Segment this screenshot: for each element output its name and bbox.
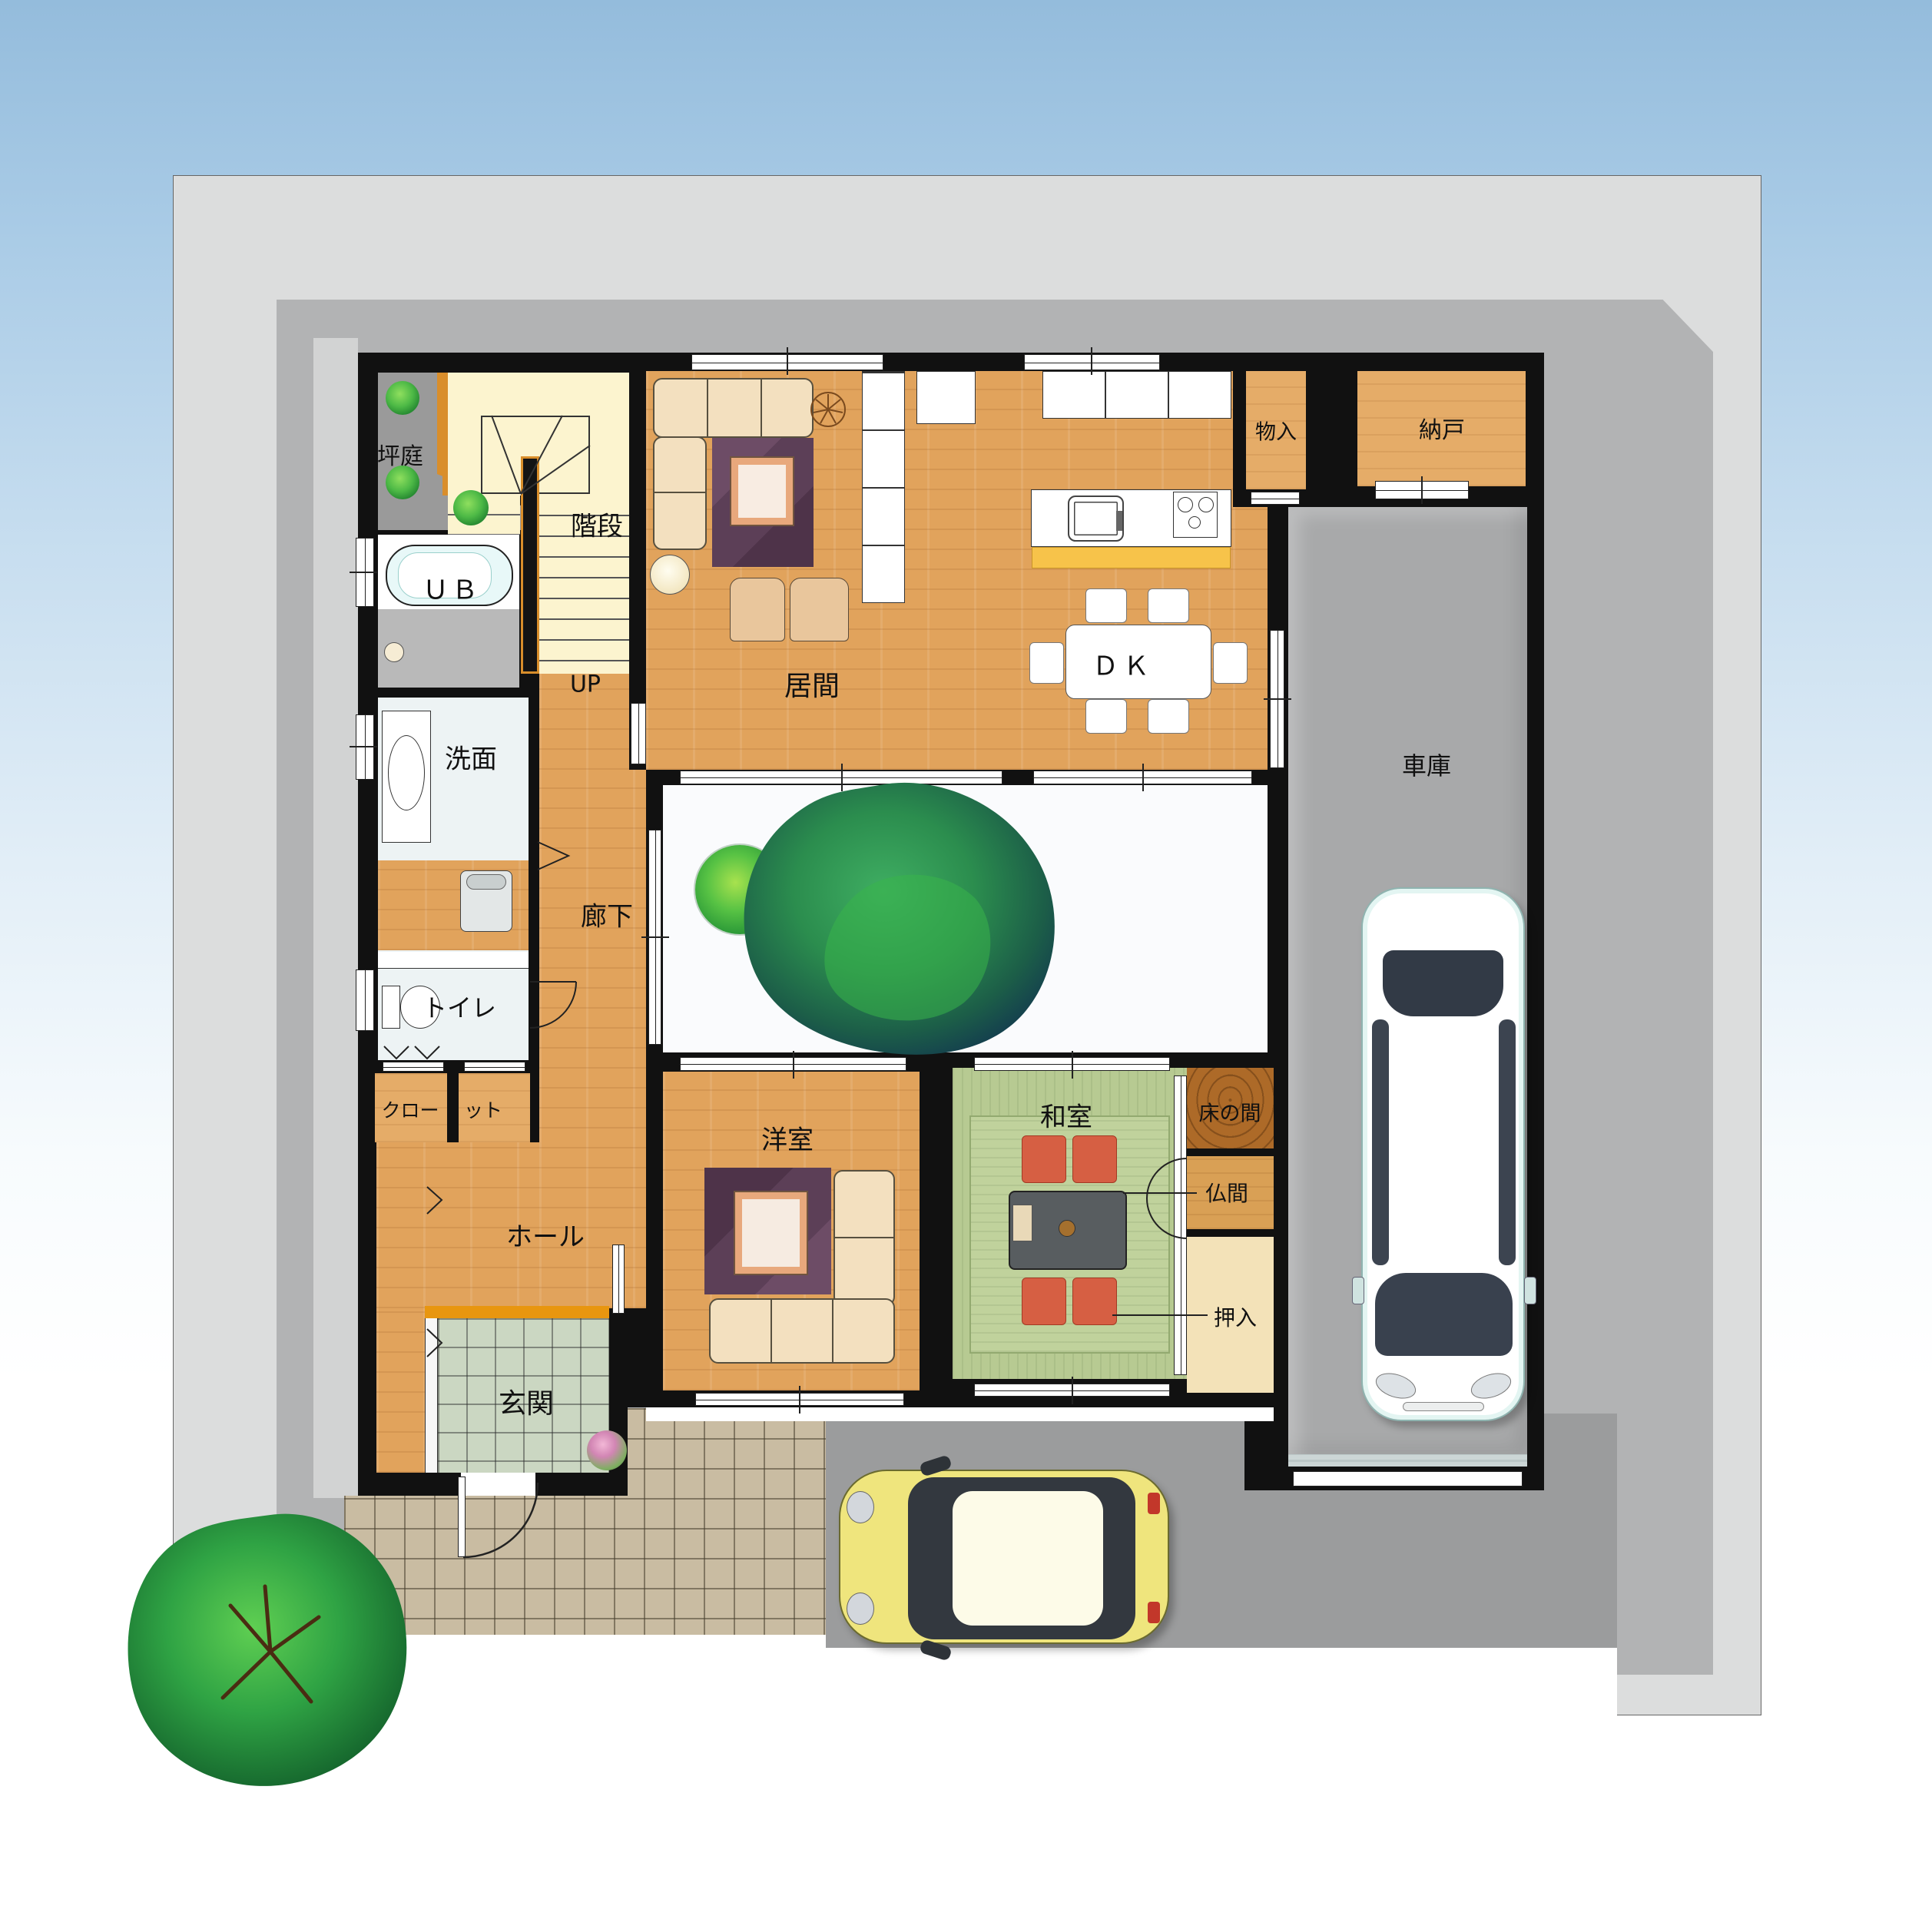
room-label-ima: 居間	[784, 664, 840, 704]
stove-burner	[1198, 497, 1214, 512]
site-west-walkway	[313, 338, 358, 1498]
youshitsu-table	[735, 1192, 807, 1274]
window-genkan-east	[612, 1245, 625, 1314]
living-table	[731, 458, 793, 525]
dim-tick	[641, 936, 669, 938]
kitchen-counter-front	[1032, 547, 1231, 568]
white-car-side-glass	[1372, 1019, 1389, 1265]
door-corridor-living	[631, 703, 646, 764]
courtyard-round-tree	[936, 916, 1022, 1002]
room-label-monoire: 物入	[1255, 416, 1297, 446]
yellow-car	[839, 1470, 1169, 1644]
room-label-closet-left: クロー	[381, 1095, 439, 1123]
dim-tick	[787, 347, 788, 375]
kitchen-wall-cabinets	[1042, 371, 1231, 419]
room-label-washitsu: 和室	[1040, 1096, 1092, 1134]
armchair	[790, 578, 849, 641]
youshitsu-sofa-right	[833, 1170, 895, 1306]
zabuton-cushion	[1072, 1135, 1117, 1183]
floor-lamp-icon	[650, 555, 690, 595]
dim-tick	[1072, 1051, 1073, 1079]
yellow-car-headlight	[847, 1491, 874, 1523]
sofa-left	[653, 436, 707, 550]
kitchen-faucet	[1116, 511, 1122, 531]
south-walkway	[646, 1407, 1274, 1421]
room-label-oshiire: 押入	[1214, 1301, 1257, 1332]
site-white-south-left	[344, 1635, 826, 1715]
dim-tick	[350, 572, 377, 573]
room-label-up: UP	[570, 671, 601, 698]
white-car	[1361, 887, 1525, 1421]
dim-tick	[1091, 347, 1092, 375]
dk-floor-east	[1233, 507, 1268, 770]
garden-bush-icon	[386, 381, 419, 415]
dining-chair	[1085, 699, 1127, 734]
dining-chair	[1029, 642, 1064, 684]
youshitsu-sofa-bottom	[709, 1298, 895, 1364]
dining-chair	[1213, 642, 1248, 684]
room-label-ub: ＵＢ	[423, 569, 481, 607]
room-label-tsuboniwa: 坪庭	[377, 437, 423, 471]
white-car-side-glass	[1499, 1019, 1516, 1265]
washitsu-table-item	[1012, 1205, 1032, 1241]
washitsu-table-item	[1059, 1220, 1075, 1237]
white-car-headlight	[1373, 1368, 1420, 1403]
entry-door-leaf	[458, 1477, 466, 1557]
room-label-senmen: 洗面	[445, 738, 497, 776]
closet-door-right	[464, 1062, 525, 1072]
zabuton-cushion	[1072, 1278, 1117, 1325]
room-label-dk: ＤＫ	[1092, 645, 1154, 683]
dining-chair	[1148, 699, 1189, 734]
white-car-grille	[1403, 1402, 1484, 1411]
room-label-youshitsu: 洋室	[761, 1119, 814, 1157]
stove-burner	[1188, 516, 1201, 529]
garage-shutter	[1288, 1454, 1527, 1467]
dim-tick	[350, 746, 377, 747]
white-car-headlight	[1468, 1368, 1515, 1403]
tv-board	[862, 371, 905, 603]
room-label-kaidan: 階段	[571, 505, 623, 543]
dim-tick	[1142, 764, 1144, 791]
room-label-tokonoma: 床の間	[1199, 1097, 1261, 1127]
dim-tick	[1421, 476, 1423, 504]
genkan-door-track	[425, 1318, 438, 1473]
armchair	[730, 578, 785, 641]
zabuton-cushion	[1022, 1278, 1066, 1325]
room-label-nando: 納戸	[1419, 411, 1465, 445]
toilet-tank	[382, 986, 400, 1029]
dim-tick	[841, 764, 843, 791]
dim-tick	[793, 1051, 794, 1079]
yellow-car-taillight	[1148, 1602, 1160, 1623]
white-car-rear-window	[1383, 950, 1503, 1016]
room-label-genkan: 玄関	[499, 1381, 554, 1421]
dining-chair	[1148, 588, 1189, 623]
room-label-rouka: 廊下	[581, 896, 633, 933]
monoire-door	[1251, 492, 1300, 505]
dim-tick	[1072, 1377, 1073, 1404]
dim-tick	[1264, 698, 1291, 700]
sofa-top	[653, 378, 814, 438]
white-car-mirror	[1524, 1277, 1536, 1304]
white-car-mirror	[1352, 1277, 1364, 1304]
closet-door-left	[383, 1062, 444, 1072]
stairs-newel-wall	[521, 456, 539, 674]
yellow-car-roof	[953, 1491, 1103, 1626]
garage-door-rail	[1293, 1471, 1523, 1486]
window-toilet-west	[356, 969, 374, 1031]
hall-side-strip	[376, 1308, 425, 1473]
room-label-butsuma: 仏間	[1205, 1177, 1248, 1208]
room-label-shako: 車庫	[1402, 747, 1451, 782]
room-label-hall: ホール	[506, 1216, 585, 1254]
dim-tick	[799, 1386, 800, 1414]
fridge	[916, 371, 976, 424]
floorplan-page: { "plan": { "type": "japanese-house-firs…	[0, 0, 1932, 1919]
porch-flower-bush	[587, 1430, 627, 1470]
shoji-washitsu-east	[1174, 1076, 1187, 1375]
ub-stool-icon	[384, 642, 404, 662]
toilet-counter	[378, 952, 529, 969]
dining-chair	[1085, 588, 1127, 623]
genkan-door-opening	[461, 1473, 535, 1496]
yellow-car-taillight	[1148, 1493, 1160, 1514]
yellow-car-headlight	[847, 1593, 874, 1625]
washing-machine-lid	[466, 874, 506, 890]
room-label-toilet: トイレ	[423, 989, 496, 1024]
courtyard-round-tree	[695, 845, 784, 934]
agarikamachi-step	[425, 1306, 609, 1318]
white-car-windshield	[1375, 1273, 1513, 1356]
room-label-closet-right: ット	[464, 1095, 502, 1123]
garden-bush-icon	[453, 490, 489, 525]
vanity-basin	[388, 735, 425, 810]
stove-burner	[1178, 497, 1193, 512]
zabuton-cushion	[1022, 1135, 1066, 1183]
